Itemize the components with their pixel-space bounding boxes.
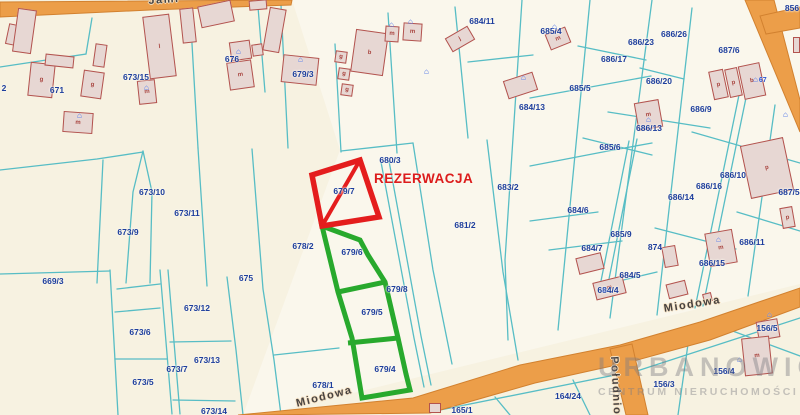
parcel-number-label: 680/3 (379, 155, 400, 165)
parcel-number-label: 684/13 (519, 102, 545, 112)
parcel-number-label: 684/11 (469, 16, 495, 26)
parcel-number-label: 673/11 (174, 208, 200, 218)
address-number-icon (767, 311, 773, 319)
parcel-number-label: 687/6 (718, 45, 739, 55)
address-number-icon (389, 21, 395, 29)
building: m (741, 336, 773, 377)
parcel-number-label: 673/7 (166, 364, 187, 374)
address-number-icon (408, 18, 414, 26)
parcel-number-label: 686/17 (601, 54, 627, 64)
building (429, 403, 441, 413)
parcel-number-label: 164/24 (555, 391, 581, 401)
building-type-letter: b (367, 49, 371, 55)
parcel-number-label: 686/26 (661, 29, 687, 39)
building-type-letter: j (458, 36, 462, 42)
building-type-letter: l (158, 43, 160, 49)
parcel-number-label: 686/23 (628, 37, 654, 47)
building: m (226, 59, 255, 90)
parcel-number-label: 684/7 (581, 243, 602, 253)
parcel-number-label: 686/20 (646, 76, 672, 86)
address-number-icon (521, 74, 527, 82)
building: g (334, 50, 348, 64)
parcel-number-label: 679/8 (386, 284, 407, 294)
parcel-number-label: 673/14 (201, 406, 227, 415)
parcel-number-label: 673/13 (194, 355, 220, 365)
address-number-icon (737, 356, 743, 364)
building (793, 37, 800, 53)
building-type-letter: g (342, 71, 346, 77)
parcel-number-label: 679/6 (341, 247, 362, 257)
parcel-number-label: 673/15 (123, 72, 149, 82)
address-number-icon (716, 236, 722, 244)
parcel-number-label: 686/16 (696, 181, 722, 191)
parcel-number-label: 685/6 (599, 142, 620, 152)
address-number-icon (298, 56, 304, 64)
map-canvas (0, 0, 800, 415)
address-number-icon (552, 23, 558, 31)
parcel-number-label: 156/5 (756, 323, 777, 333)
address-number-icon (77, 112, 83, 120)
building-type-letter: p (785, 214, 790, 221)
parcel-number-label: 673/9 (117, 227, 138, 237)
address-number-icon (144, 84, 150, 92)
parcel-number-label: 2 (2, 83, 7, 93)
building-type-letter: g (345, 87, 349, 93)
reservation-label: REZERWACJA (374, 171, 473, 186)
parcel-number-label: 685/4 (540, 26, 561, 36)
parcel-number-label: 673/12 (184, 303, 210, 313)
building-type-letter: m (237, 72, 243, 79)
parcel-number-label: 684/5 (619, 270, 640, 280)
parcel-number-label: 685/9 (610, 229, 631, 239)
address-number-icon (602, 286, 608, 294)
address-number-icon (783, 111, 789, 119)
building-type-letter: p (731, 79, 736, 86)
building-type-letter: m (718, 245, 724, 252)
parcel-number-label: 686/9 (690, 104, 711, 114)
parcel-number-label: 675 (239, 273, 253, 283)
parcel-number-label: 683/2 (497, 182, 518, 192)
building-type-letter: g (90, 81, 94, 87)
building: g (340, 83, 354, 97)
building-type-letter: p (716, 81, 721, 88)
building-type-letter: m (75, 119, 81, 125)
parcel-number-label: 684/4 (597, 285, 618, 295)
parcel-number-label: 687/5 (778, 187, 799, 197)
parcel-number-label: 681/2 (454, 220, 475, 230)
building-type-letter: m (410, 29, 416, 35)
building (249, 0, 268, 11)
parcel-number-label: 165/1 (451, 405, 472, 415)
address-number-icon (646, 116, 652, 124)
parcel-number-label: 679/5 (361, 307, 382, 317)
address-number-icon (424, 68, 430, 76)
parcel-number-label: 673/6 (129, 327, 150, 337)
cadastral-map[interactable]: REZERWACJA URBANOWICZ CENTRUM NIERUCHOMO… (0, 0, 800, 415)
parcel-number-label: 684/6 (567, 205, 588, 215)
parcel-number-label: 679/4 (374, 364, 395, 374)
parcel-number-label: 671 (50, 85, 64, 95)
parcel-number-label: 679/7 (333, 186, 354, 196)
parcel-number-label: 673/10 (139, 187, 165, 197)
building-type-letter: g (339, 54, 343, 60)
building: g (337, 67, 351, 81)
parcel-number-label: 686/10 (720, 170, 746, 180)
address-number-icon (236, 48, 242, 56)
parcel-number-label: 856 (785, 3, 799, 13)
parcel-number-label: 686/13 (636, 123, 662, 133)
building-type-letter: g (39, 77, 43, 83)
parcel-number-label: 156/3 (653, 379, 674, 389)
parcel-number-label: 685/5 (569, 83, 590, 93)
building-type-letter: p (765, 165, 770, 172)
parcel-number-label: 874 (648, 242, 662, 252)
parcel-number-label: 156/4 (713, 366, 734, 376)
parcel-number-label: 686/11 (739, 237, 765, 247)
parcel-number-label: 669/3 (42, 276, 63, 286)
building-type-letter: m (754, 353, 760, 360)
parcel-number-label: 686/14 (668, 192, 694, 202)
parcel-number-label: 686/15 (699, 258, 725, 268)
address-number-icon: 67 (753, 76, 767, 84)
parcel-tint (243, 0, 800, 415)
parcel-number-label: 678/2 (292, 241, 313, 251)
parcel-number-label: 679/3 (292, 69, 313, 79)
parcel-number-label: 678/1 (312, 380, 333, 390)
building: b (350, 29, 389, 76)
parcel-number-label: 673/5 (132, 377, 153, 387)
building: g (80, 70, 105, 100)
building-type-letter: m (389, 31, 395, 37)
